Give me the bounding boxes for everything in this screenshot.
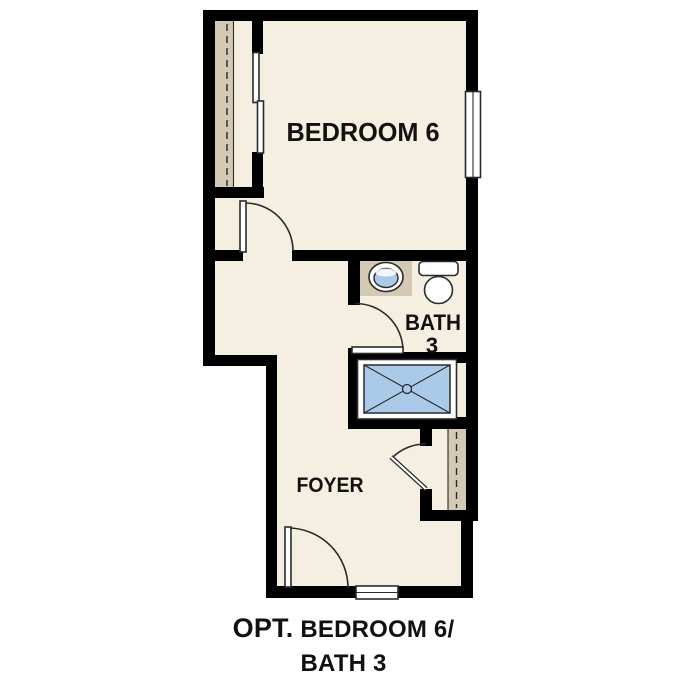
bath3-label: BATH (405, 310, 461, 335)
bedroom-closet-shelf (214, 21, 233, 187)
wall-segment (203, 250, 243, 261)
shower (358, 360, 457, 420)
wall-segment (203, 355, 277, 366)
plan-caption: OPT. BEDROOM 6/ BATH 3 (0, 613, 687, 679)
caption-prefix: OPT. (233, 613, 294, 643)
wall-segment (420, 510, 478, 521)
toilet-bowl (425, 277, 453, 304)
sliding-door-panel (258, 101, 264, 153)
wall-segment (252, 21, 263, 54)
wall-segment (292, 250, 478, 261)
wall-segment (266, 355, 277, 598)
bath3-number: 3 (426, 333, 438, 358)
caption-line1-rest: BEDROOM 6/ (300, 616, 454, 643)
entry-door-leaf (285, 527, 291, 587)
wall-segment (203, 10, 478, 21)
window (466, 92, 481, 178)
floor-plan: BEDROOM 6 BATH 3 FOYER OPT. BEDROOM 6/ B… (0, 0, 687, 687)
wall-segment (348, 257, 360, 305)
shower-drain (403, 385, 412, 394)
foyer-closet-shelf (448, 429, 467, 510)
sliding-door-panel (253, 53, 259, 103)
toilet-tank (419, 262, 458, 276)
bedroom-door-leaf (240, 201, 246, 252)
wall-segment (461, 519, 473, 598)
sink (369, 263, 403, 292)
caption-line2: BATH 3 (0, 648, 687, 679)
entry-threshold (356, 586, 398, 599)
foyer-label: FOYER (297, 474, 364, 497)
wall-segment (466, 10, 478, 521)
bath-door-leaf (352, 347, 403, 354)
sink-highlight (376, 269, 397, 277)
bedroom6-label: BEDROOM 6 (287, 117, 440, 147)
wall-segment (252, 152, 263, 198)
wall-segment (420, 425, 432, 446)
floor-plan-svg: BEDROOM 6 BATH 3 FOYER (0, 0, 687, 687)
caption-line1: OPT. BEDROOM 6/ (0, 613, 687, 648)
